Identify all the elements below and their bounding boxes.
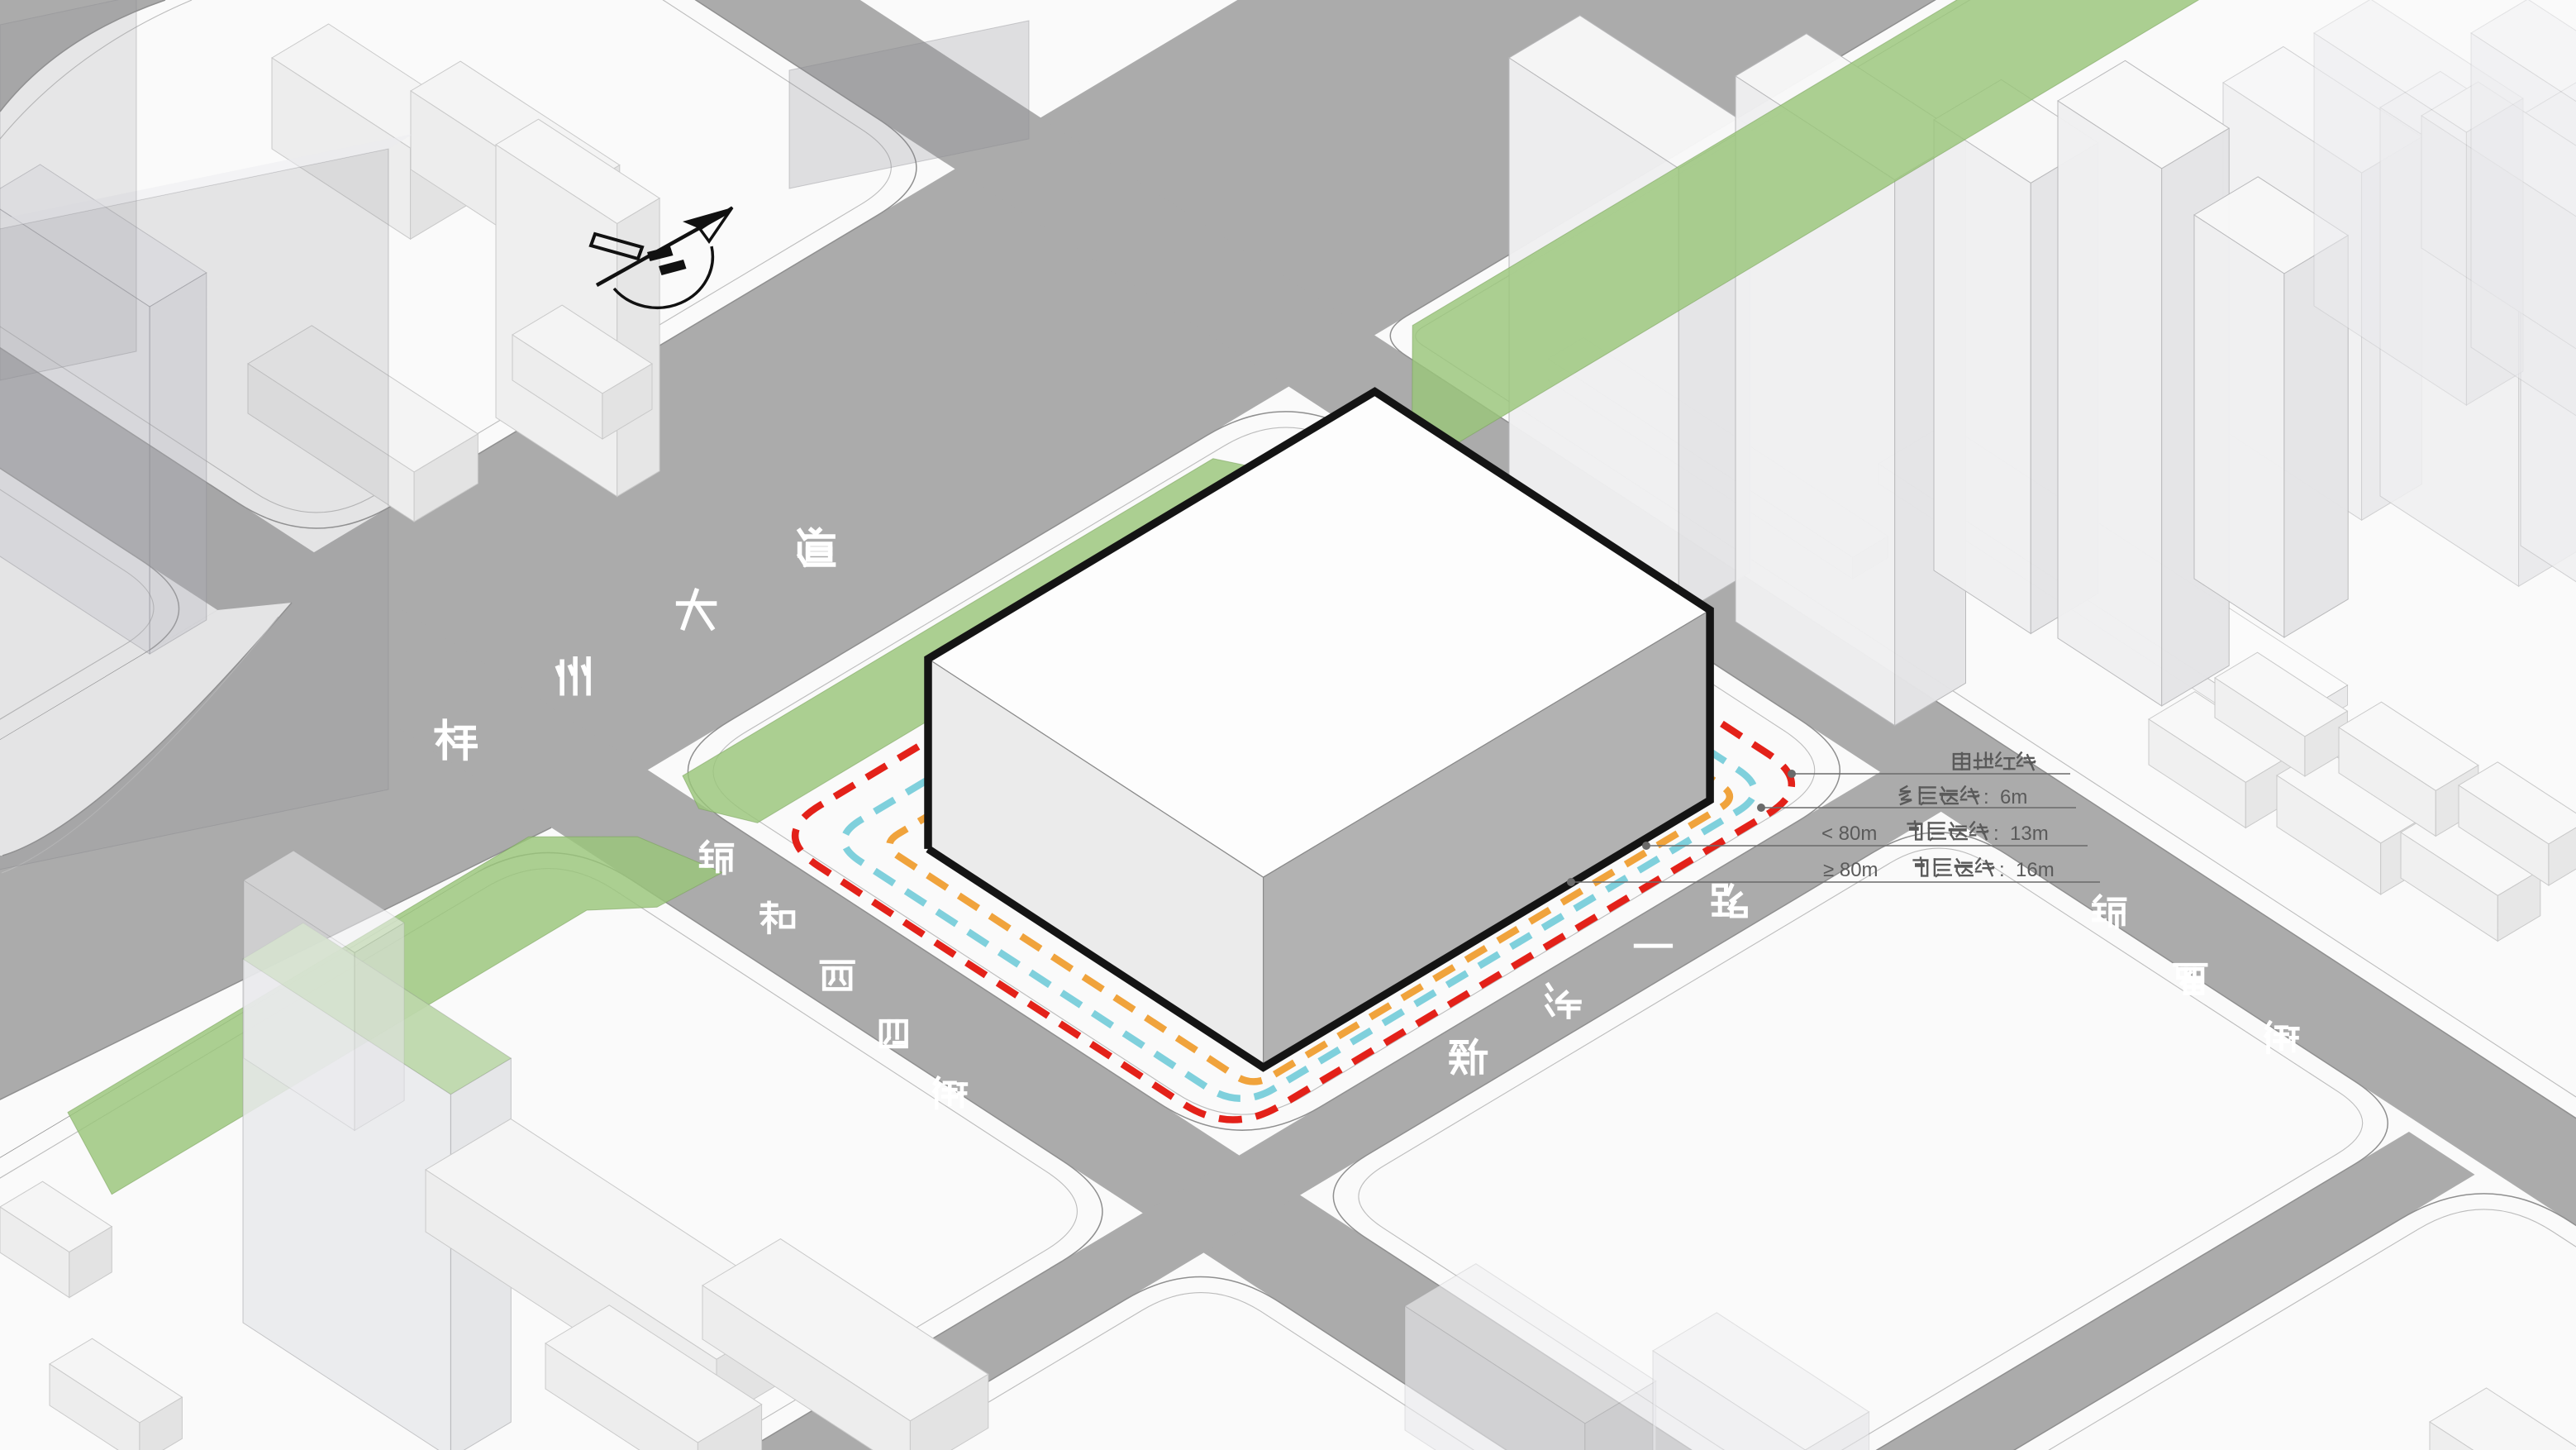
svg-text:: 13m: : 13m [1993,823,2049,845]
svg-text:: 6m: : 6m [1983,786,2027,808]
svg-text:: 16m: : 16m [1999,859,2055,881]
svg-text:< 80m: < 80m [1821,823,1877,845]
svg-text:≥ 80m: ≥ 80m [1823,859,1878,881]
